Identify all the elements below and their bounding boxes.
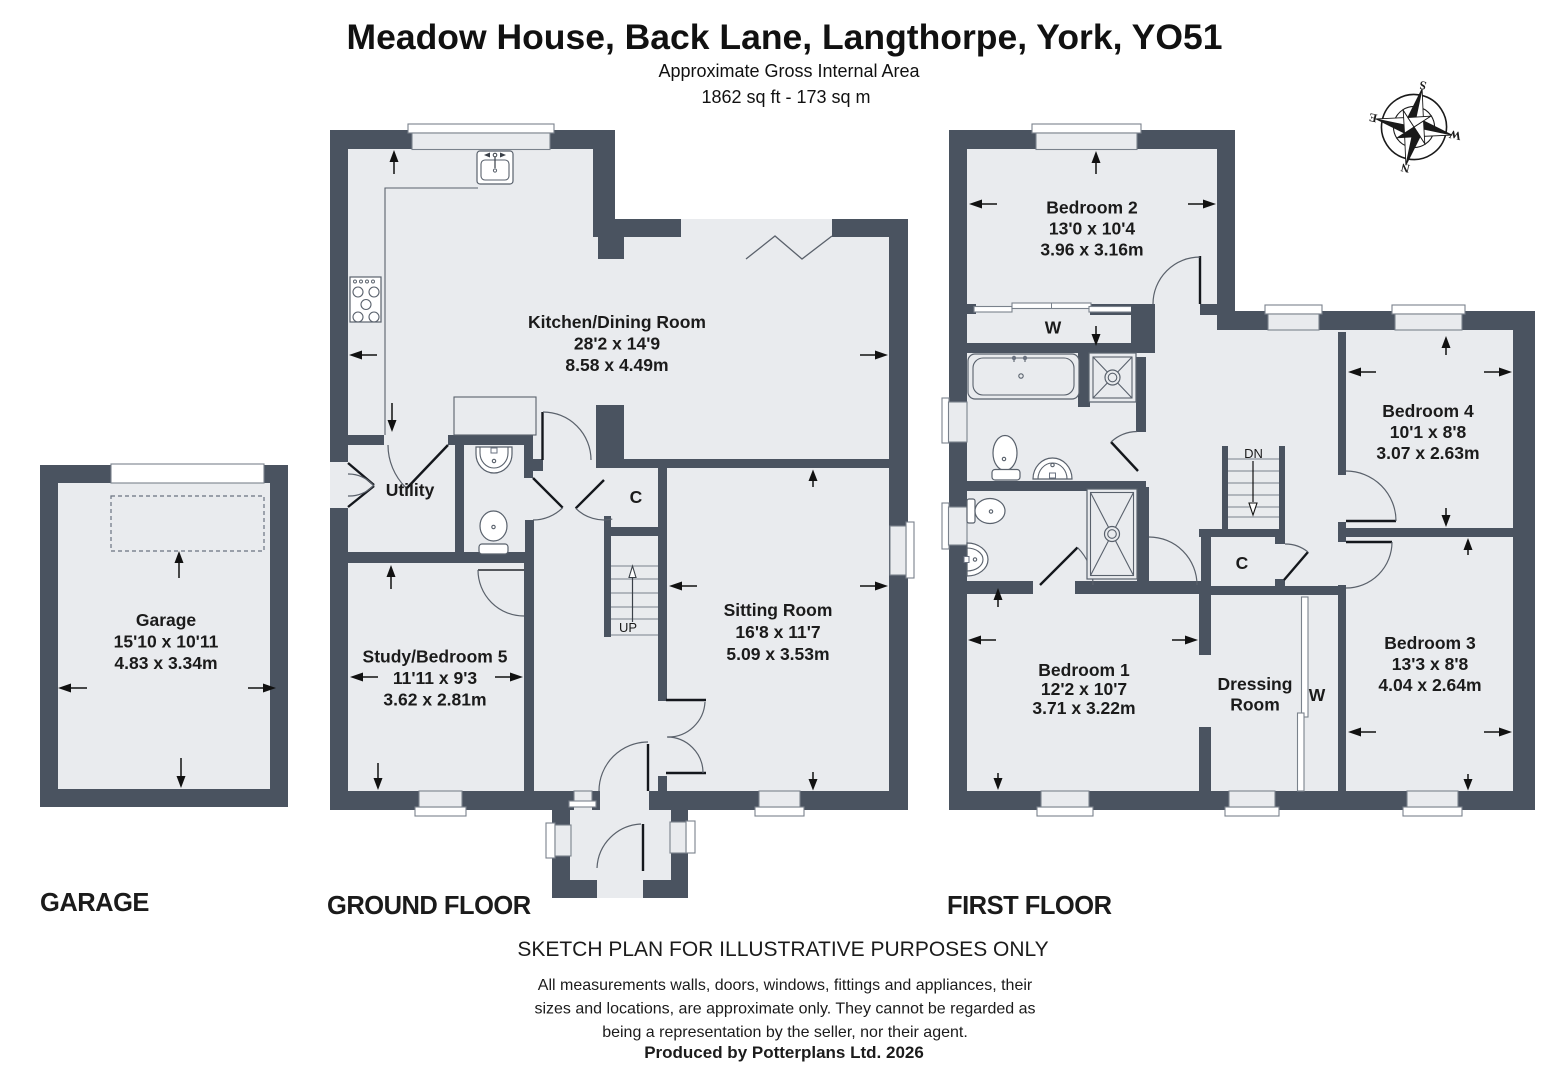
svg-text:All measurements walls, doors,: All measurements walls, doors, windows, … <box>538 977 1033 994</box>
svg-text:10'1 x 8'8: 10'1 x 8'8 <box>1390 422 1467 442</box>
svg-text:28'2 x 14'9: 28'2 x 14'9 <box>574 334 660 354</box>
svg-text:DN: DN <box>1244 446 1263 461</box>
svg-text:5.09 x 3.53m: 5.09 x 3.53m <box>726 644 829 664</box>
svg-text:3.62 x 2.81m: 3.62 x 2.81m <box>383 690 486 710</box>
svg-text:E: E <box>1368 110 1379 125</box>
svg-text:16'8 x 11'7: 16'8 x 11'7 <box>735 622 820 642</box>
svg-text:Bedroom 1: Bedroom 1 <box>1038 660 1130 680</box>
svg-text:12'2 x 10'7: 12'2 x 10'7 <box>1041 679 1127 699</box>
svg-text:Garage: Garage <box>136 610 197 630</box>
svg-text:11'11 x 9'3: 11'11 x 9'3 <box>393 668 478 688</box>
svg-text:3.96 x 3.16m: 3.96 x 3.16m <box>1040 240 1143 260</box>
svg-text:4.83 x 3.34m: 4.83 x 3.34m <box>114 653 217 673</box>
svg-text:SKETCH PLAN FOR ILLUSTRATIVE P: SKETCH PLAN FOR ILLUSTRATIVE PURPOSES ON… <box>517 938 1048 961</box>
svg-text:Utility: Utility <box>386 480 435 500</box>
svg-text:N: N <box>1399 160 1411 176</box>
svg-text:4.04 x 2.64m: 4.04 x 2.64m <box>1378 675 1481 695</box>
svg-text:FIRST FLOOR: FIRST FLOOR <box>947 892 1112 920</box>
svg-text:3.71 x 3.22m: 3.71 x 3.22m <box>1032 698 1135 718</box>
svg-text:GARAGE: GARAGE <box>40 889 149 917</box>
svg-text:Room: Room <box>1230 695 1280 715</box>
svg-text:C: C <box>1236 553 1249 573</box>
svg-text:Kitchen/Dining Room: Kitchen/Dining Room <box>528 312 706 332</box>
svg-text:1862 sq ft - 173 sq m: 1862 sq ft - 173 sq m <box>701 87 870 107</box>
svg-text:W: W <box>1448 127 1463 143</box>
svg-text:Produced by Potterplans Ltd. 2: Produced by Potterplans Ltd. 2026 <box>644 1043 924 1062</box>
svg-text:13'3 x 8'8: 13'3 x 8'8 <box>1392 654 1469 674</box>
svg-text:Bedroom 3: Bedroom 3 <box>1384 633 1476 653</box>
svg-text:S: S <box>1418 78 1428 93</box>
svg-text:Study/Bedroom 5: Study/Bedroom 5 <box>363 647 508 667</box>
svg-text:Bedroom 4: Bedroom 4 <box>1382 401 1474 421</box>
svg-text:3.07 x 2.63m: 3.07 x 2.63m <box>1376 443 1479 463</box>
svg-text:UP: UP <box>619 620 637 635</box>
svg-text:Meadow House, Back Lane, Langt: Meadow House, Back Lane, Langthorpe, Yor… <box>347 17 1223 57</box>
svg-text:Bedroom 2: Bedroom 2 <box>1046 198 1138 218</box>
svg-text:being a representation by the: being a representation by the seller, no… <box>602 1024 968 1041</box>
svg-text:Sitting Room: Sitting Room <box>724 600 833 620</box>
svg-text:13'0 x 10'4: 13'0 x 10'4 <box>1049 219 1135 239</box>
svg-text:sizes and locations, are appro: sizes and locations, are approximate onl… <box>534 1001 1035 1018</box>
svg-text:8.58 x 4.49m: 8.58 x 4.49m <box>565 355 668 375</box>
svg-text:Approximate Gross Internal Are: Approximate Gross Internal Area <box>658 61 920 81</box>
svg-text:15'10 x 10'11: 15'10 x 10'11 <box>114 632 219 652</box>
svg-text:C: C <box>630 487 643 507</box>
svg-text:Dressing: Dressing <box>1218 674 1293 694</box>
svg-text:W: W <box>1309 685 1326 705</box>
svg-text:GROUND FLOOR: GROUND FLOOR <box>327 892 531 920</box>
svg-text:W: W <box>1045 318 1062 338</box>
